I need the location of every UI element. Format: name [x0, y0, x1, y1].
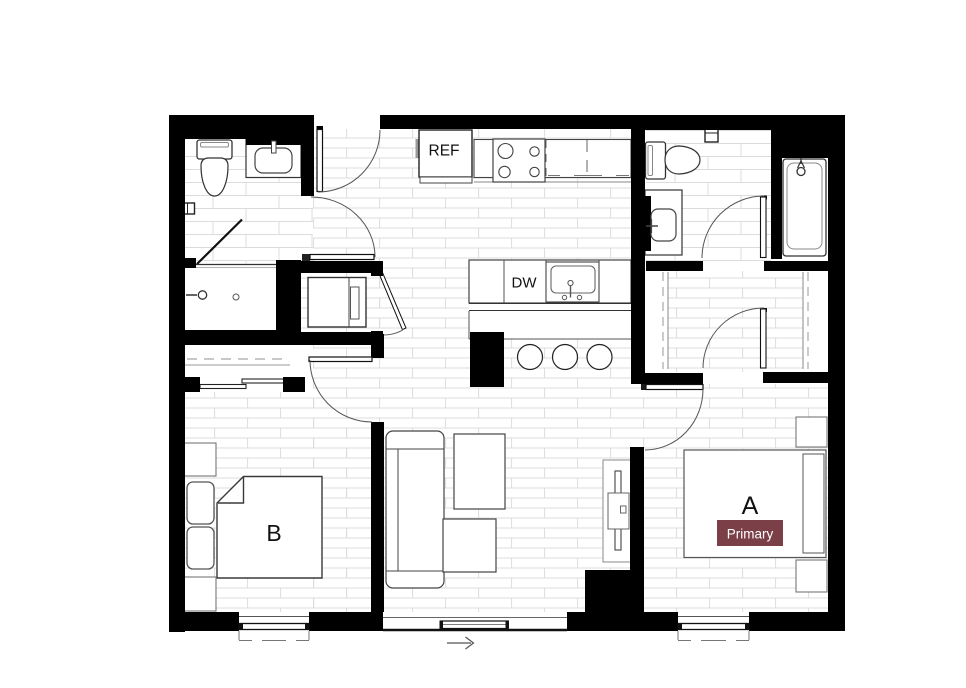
svg-text:A: A — [742, 492, 759, 520]
svg-text:B: B — [266, 520, 281, 546]
svg-text:DW: DW — [512, 275, 538, 292]
svg-text:REF: REF — [429, 143, 460, 160]
svg-text:Primary: Primary — [727, 527, 774, 542]
